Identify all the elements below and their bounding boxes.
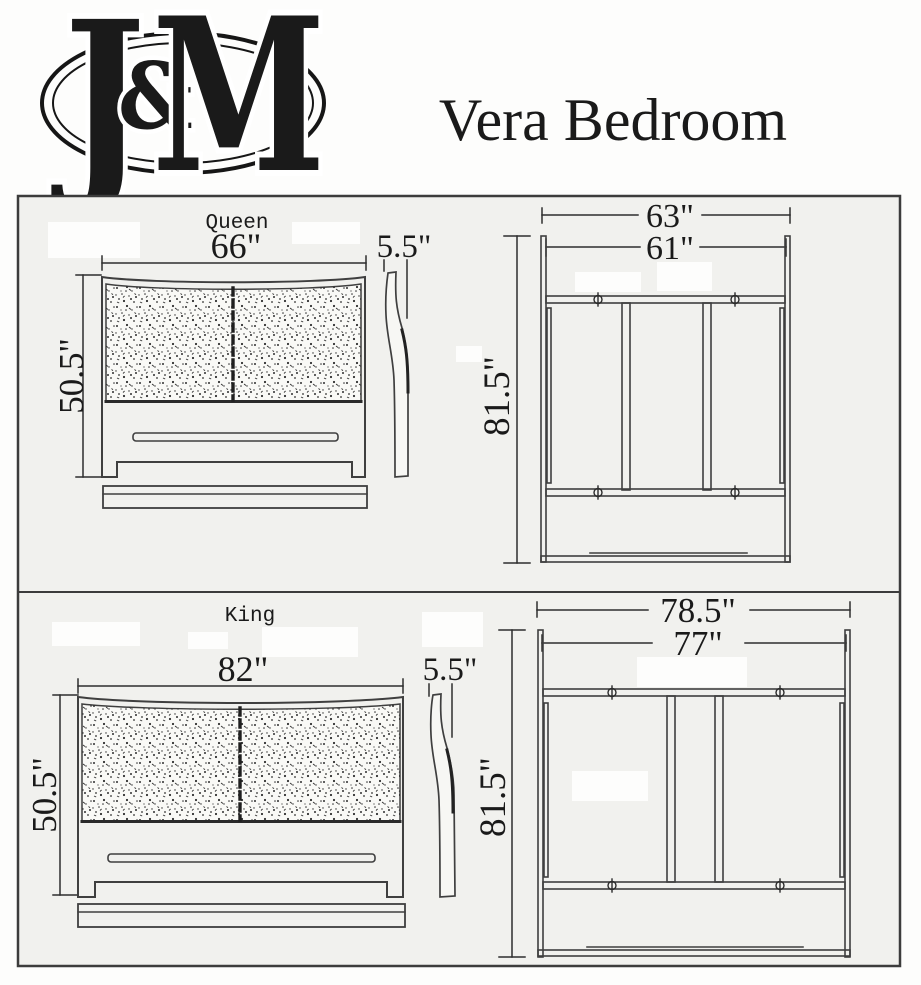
brand-logo: J & M (42, 0, 326, 222)
queen-groove-bar (133, 433, 338, 441)
king-frame-length-value: 81.5" (473, 757, 514, 837)
king-base-plank (78, 904, 405, 927)
logo-letter-m: M (152, 0, 326, 220)
queen-frame-length-value: 81.5" (477, 356, 518, 436)
queen-depth-value: 5.5" (377, 229, 432, 265)
queen-width-value: 66" (211, 226, 262, 266)
king-label: King (225, 605, 275, 628)
queen-height-value: 50.5" (52, 338, 91, 414)
king-height-value: 50.5" (25, 757, 64, 833)
king-groove-bar (108, 854, 375, 862)
queen-base-plank (103, 486, 367, 508)
king-width-value: 82" (218, 649, 269, 689)
page-title: Vera Bedroom (439, 87, 787, 153)
spec-sheet: J & M Vera Bedroom Queen 66" (0, 0, 921, 980)
king-frame-inner-width-value: 77" (673, 624, 722, 663)
queen-frame-inner-width-value: 61" (646, 230, 694, 267)
king-depth-value: 5.5" (423, 652, 478, 688)
